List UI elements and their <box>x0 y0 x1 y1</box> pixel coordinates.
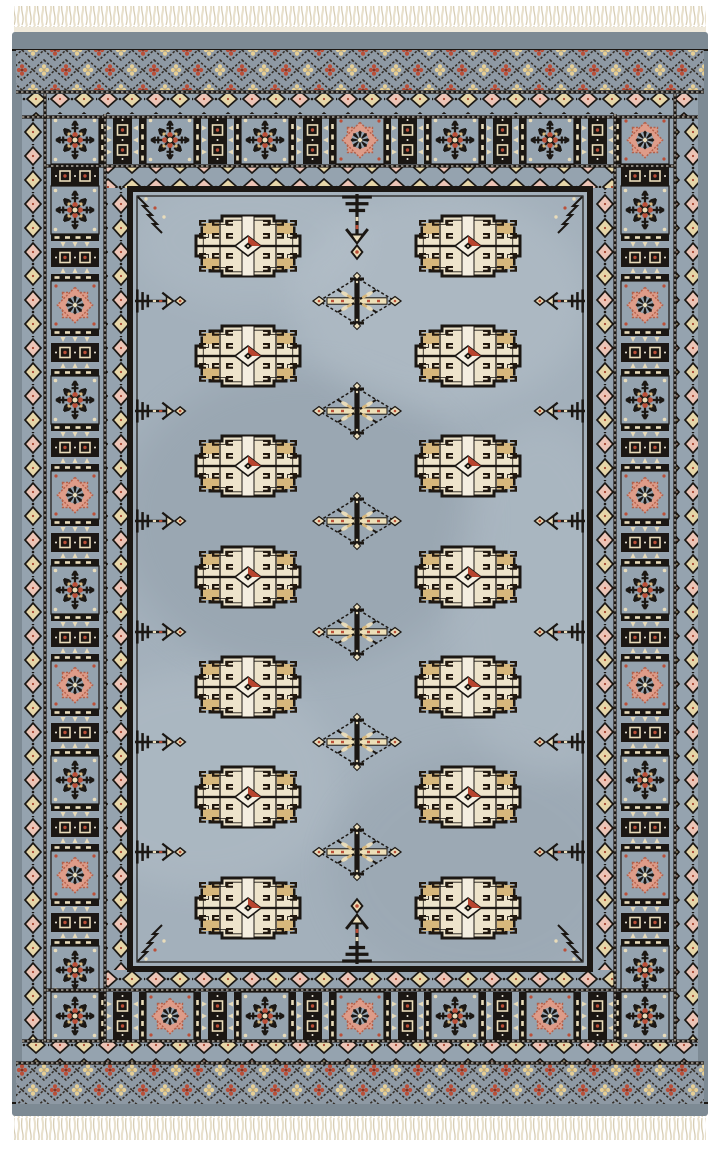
divider-panel <box>621 709 669 756</box>
divider-panel <box>51 519 99 566</box>
rosette-panel <box>51 851 99 899</box>
star-panel <box>431 992 479 1040</box>
divider-panel <box>621 234 669 281</box>
outer-lattice-border-top <box>16 50 704 90</box>
gul-medallion <box>196 878 300 938</box>
star-panel <box>621 992 669 1040</box>
rug-photo <box>0 0 720 1150</box>
divider-panel <box>289 992 336 1040</box>
gul-medallion <box>416 216 520 276</box>
divider-panel <box>384 992 431 1040</box>
guard-stripe <box>43 94 46 1042</box>
star-panel <box>621 756 669 804</box>
divider-panel <box>194 992 241 1040</box>
gul-medallion <box>416 436 520 496</box>
gul-medallion <box>416 547 520 607</box>
divider-panel <box>621 804 669 851</box>
star-panel <box>51 186 99 234</box>
gul-medallion <box>416 878 520 938</box>
star-panel <box>51 756 99 804</box>
fringe-top <box>14 6 706 34</box>
rosette-panel <box>621 851 669 899</box>
rosette-panel <box>51 661 99 709</box>
rosette-panel <box>146 992 194 1040</box>
star-panel <box>51 946 99 994</box>
diamond-guard-band <box>106 166 614 188</box>
star-panel <box>51 116 99 164</box>
divider-panel <box>479 992 526 1040</box>
divider-panel <box>384 116 431 164</box>
divider-panel <box>51 614 99 661</box>
rosette-panel <box>621 281 669 329</box>
rosette-panel <box>51 471 99 519</box>
star-panel <box>241 116 289 164</box>
guard-stripe <box>46 988 674 991</box>
diamond-guard-band <box>676 94 698 1064</box>
star-panel <box>526 116 574 164</box>
rosette-panel <box>336 992 384 1040</box>
divider-panel <box>51 804 99 851</box>
gul-medallion <box>196 547 300 607</box>
outer-lattice-border-bottom <box>16 1064 704 1104</box>
guard-stripe <box>22 115 698 118</box>
rosette-panel <box>336 116 384 164</box>
guard-stripe <box>613 114 616 1042</box>
star-panel <box>241 992 289 1040</box>
gul-medallion <box>196 657 300 717</box>
gul-medallion <box>196 326 300 386</box>
star-panel <box>621 566 669 614</box>
divider-panel <box>51 709 99 756</box>
divider-panel <box>51 329 99 376</box>
divider-panel <box>621 329 669 376</box>
divider-panel <box>479 116 526 164</box>
gul-medallion <box>416 657 520 717</box>
star-panel <box>146 116 194 164</box>
divider-panel <box>51 899 99 946</box>
gul-medallion <box>416 767 520 827</box>
divider-panel <box>51 424 99 471</box>
divider-panel <box>621 899 669 946</box>
gul-medallion <box>196 216 300 276</box>
guard-stripe <box>16 90 704 93</box>
star-panel <box>51 992 99 1040</box>
rosette-panel <box>621 661 669 709</box>
star-panel <box>51 566 99 614</box>
rosette-panel <box>51 281 99 329</box>
star-panel <box>621 376 669 424</box>
guard-stripe <box>673 94 676 1042</box>
divider-panel <box>621 614 669 661</box>
guard-stripe <box>46 164 674 167</box>
divider-panel <box>289 116 336 164</box>
gul-medallion <box>196 767 300 827</box>
diamond-guard-band <box>22 1042 698 1064</box>
gul-medallion <box>196 436 300 496</box>
rosette-panel <box>621 116 669 164</box>
divider-panel <box>621 519 669 566</box>
diamond-guard-band <box>22 94 698 116</box>
star-panel <box>621 946 669 994</box>
star-panel <box>51 376 99 424</box>
diamond-guard-band <box>592 166 614 990</box>
diamond-guard-band <box>106 166 128 990</box>
diamond-guard-band <box>22 94 44 1064</box>
divider-panel <box>194 116 241 164</box>
rosette-panel <box>526 992 574 1040</box>
star-panel <box>431 116 479 164</box>
rosette-panel <box>621 471 669 519</box>
guard-stripe <box>22 1039 698 1042</box>
rug-illustration <box>0 0 720 1150</box>
divider-panel <box>621 424 669 471</box>
guard-stripe <box>103 114 106 1042</box>
gul-medallion <box>416 326 520 386</box>
guard-stripe <box>16 1061 704 1064</box>
divider-panel <box>51 234 99 281</box>
star-panel <box>621 186 669 234</box>
